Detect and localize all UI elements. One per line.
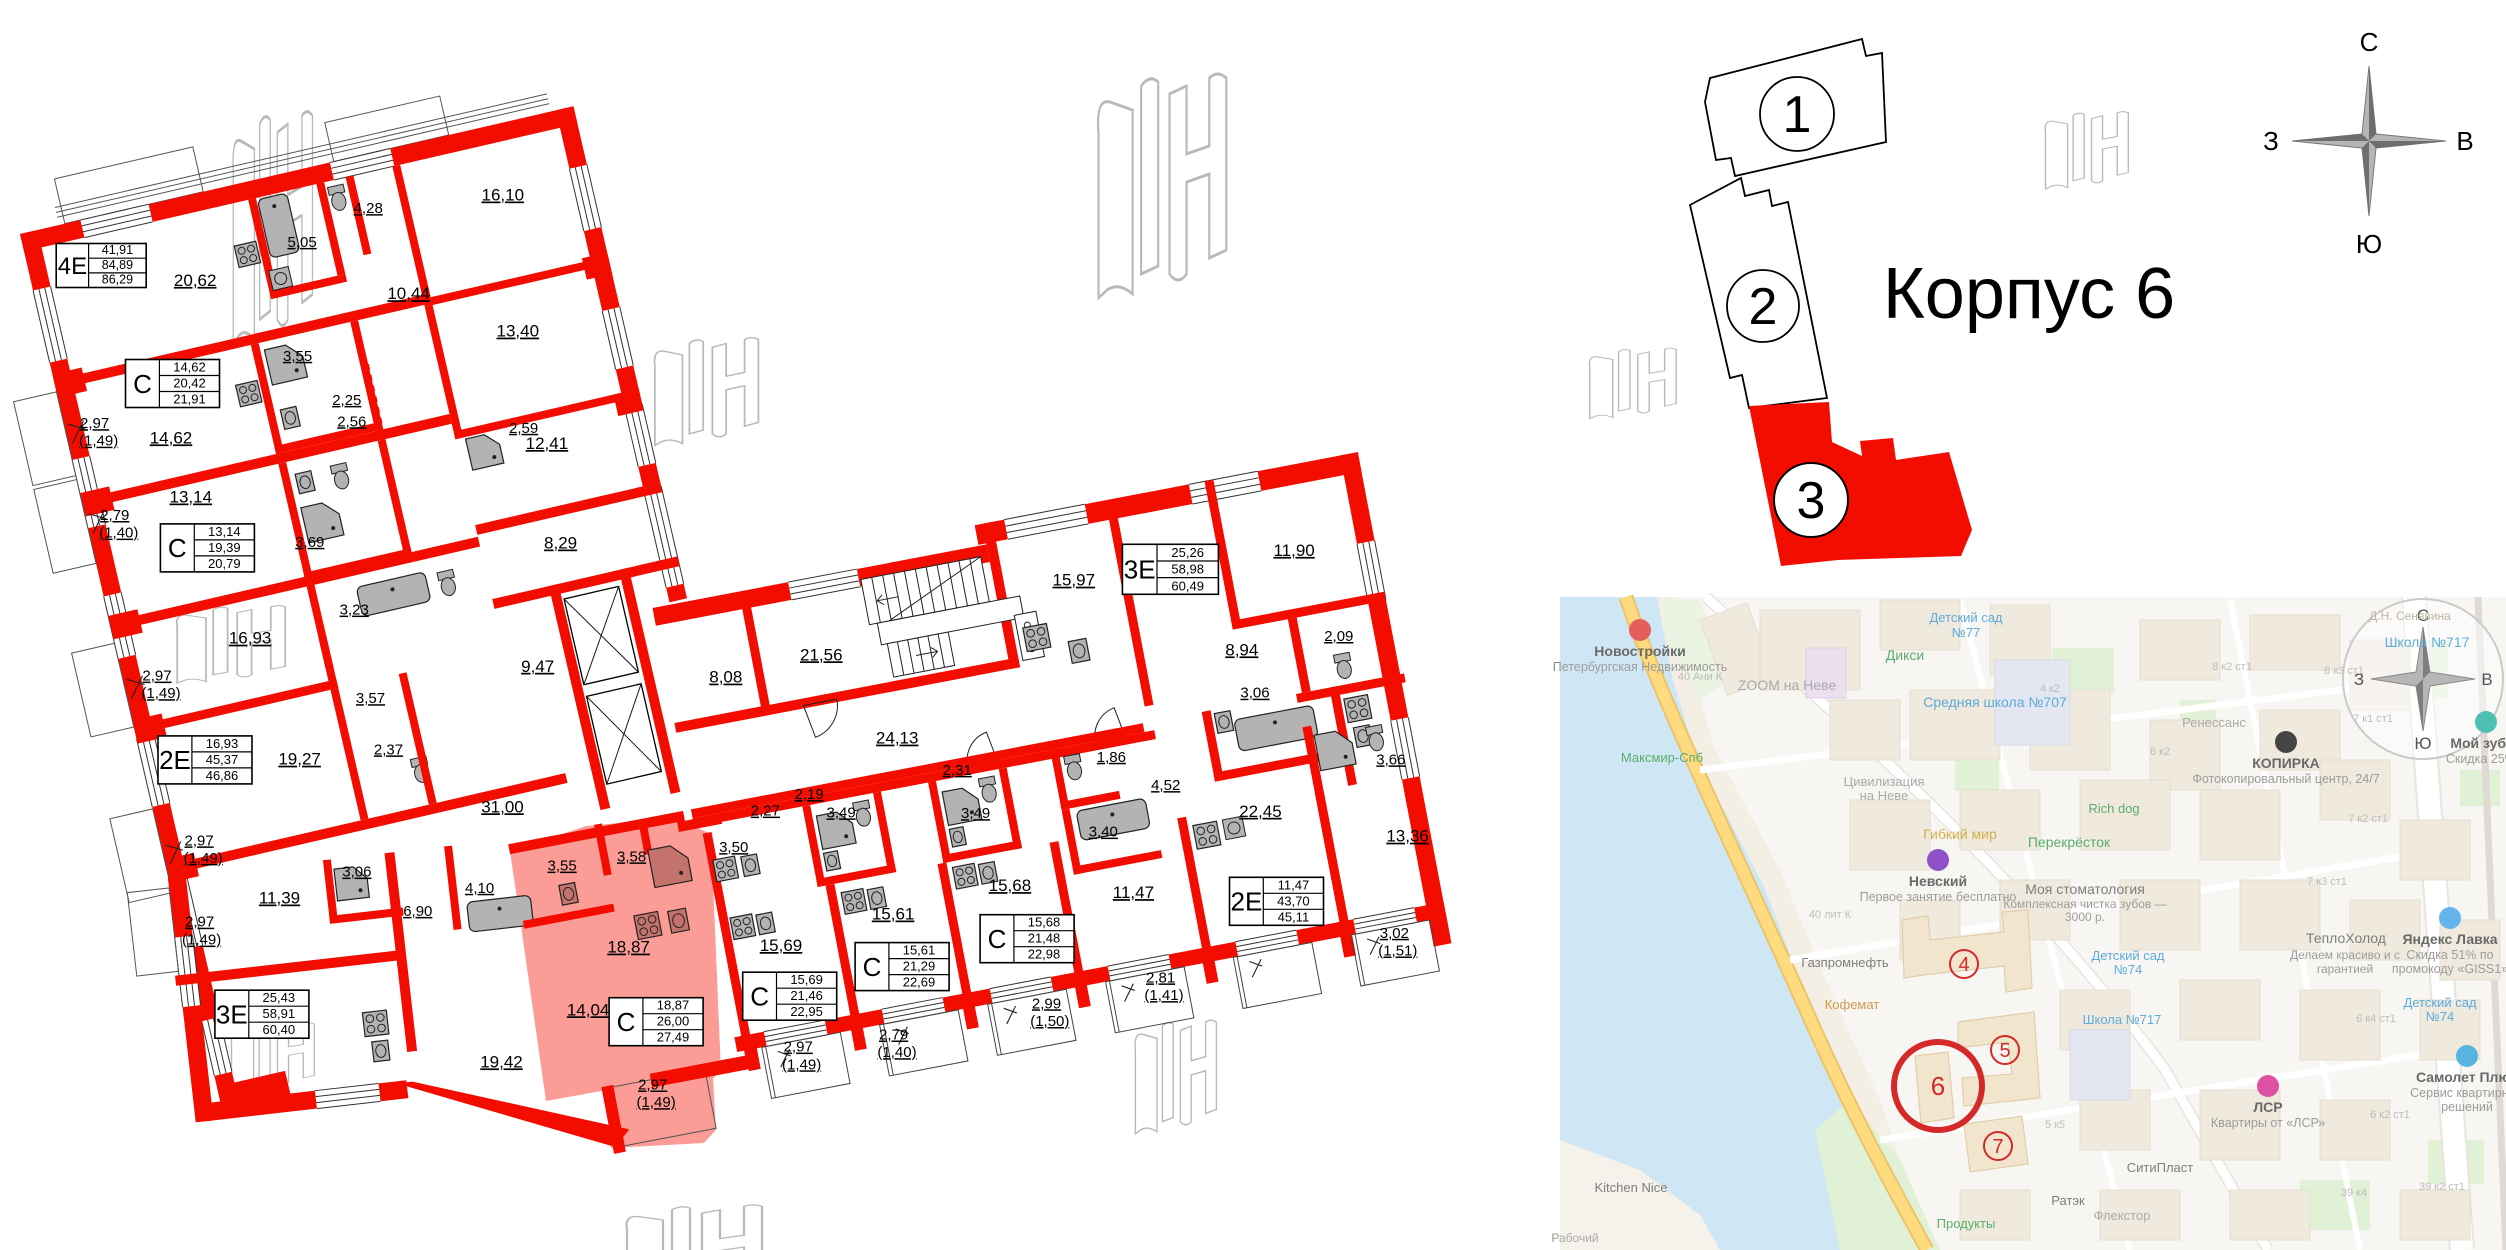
svg-text:25,26: 25,26 — [1171, 545, 1204, 560]
svg-text:3: 3 — [1797, 472, 1826, 530]
svg-text:2,27: 2,27 — [751, 803, 780, 820]
svg-text:3,06: 3,06 — [1240, 685, 1269, 702]
svg-text:11,90: 11,90 — [1273, 541, 1314, 560]
svg-text:19,42: 19,42 — [480, 1052, 523, 1071]
svg-text:3,58: 3,58 — [617, 848, 646, 865]
svg-text:5,05: 5,05 — [287, 234, 316, 251]
svg-text:3,69: 3,69 — [295, 534, 324, 551]
svg-text:8,94: 8,94 — [1225, 640, 1258, 659]
svg-text:13,40: 13,40 — [497, 322, 540, 341]
svg-text:3,55: 3,55 — [547, 858, 576, 875]
svg-text:15,69: 15,69 — [760, 936, 803, 955]
svg-text:14,62: 14,62 — [150, 428, 193, 447]
svg-text:16,93: 16,93 — [229, 629, 272, 648]
svg-text:58,91: 58,91 — [263, 1006, 296, 1021]
svg-text:14,62: 14,62 — [173, 360, 206, 375]
svg-text:21,48: 21,48 — [1028, 931, 1061, 946]
svg-text:3,55: 3,55 — [283, 348, 312, 365]
svg-text:20,62: 20,62 — [174, 271, 217, 290]
svg-text:2,31: 2,31 — [943, 762, 972, 779]
svg-text:16,10: 16,10 — [482, 186, 525, 205]
svg-text:10,44: 10,44 — [387, 284, 430, 303]
svg-text:2,97: 2,97 — [184, 832, 213, 849]
svg-text:З: З — [2263, 126, 2279, 156]
svg-text:(1,50): (1,50) — [1030, 1013, 1069, 1030]
svg-text:60,49: 60,49 — [1171, 578, 1204, 593]
svg-text:19,27: 19,27 — [278, 750, 321, 769]
svg-text:2E: 2E — [1230, 887, 1262, 917]
svg-text:26,00: 26,00 — [657, 1014, 690, 1029]
svg-text:2,79: 2,79 — [100, 507, 129, 524]
svg-text:(1,49): (1,49) — [182, 932, 221, 949]
svg-text:18,87: 18,87 — [657, 998, 690, 1013]
svg-text:16,93: 16,93 — [206, 736, 239, 751]
svg-text:3,49: 3,49 — [961, 805, 990, 822]
svg-text:12,41: 12,41 — [526, 434, 569, 453]
svg-text:3E: 3E — [216, 1000, 248, 1030]
svg-text:3,06: 3,06 — [342, 864, 371, 881]
svg-text:3,50: 3,50 — [719, 839, 748, 856]
svg-text:15,61: 15,61 — [903, 943, 936, 958]
svg-text:1,86: 1,86 — [1097, 749, 1126, 766]
svg-text:21,46: 21,46 — [790, 988, 823, 1003]
svg-text:22,98: 22,98 — [1028, 947, 1061, 962]
svg-text:C: C — [988, 924, 1007, 954]
svg-text:43,70: 43,70 — [1277, 893, 1310, 908]
svg-text:13,36: 13,36 — [1386, 827, 1429, 846]
svg-text:21,56: 21,56 — [800, 645, 843, 664]
svg-text:2,25: 2,25 — [332, 392, 361, 409]
svg-text:2,97: 2,97 — [638, 1077, 667, 1094]
svg-text:8,08: 8,08 — [709, 668, 742, 687]
svg-text:2,37: 2,37 — [374, 741, 403, 758]
svg-text:С: С — [2360, 27, 2379, 57]
svg-text:19,39: 19,39 — [208, 540, 241, 555]
svg-text:4,28: 4,28 — [354, 200, 383, 217]
svg-text:3,57: 3,57 — [356, 690, 385, 707]
svg-text:2,79: 2,79 — [879, 1027, 908, 1044]
svg-text:11,39: 11,39 — [259, 889, 300, 908]
svg-text:18,87: 18,87 — [607, 938, 650, 957]
svg-text:2,09: 2,09 — [1324, 628, 1353, 645]
svg-text:3E: 3E — [1124, 555, 1156, 585]
svg-text:C: C — [750, 982, 769, 1012]
svg-text:46,86: 46,86 — [206, 768, 239, 783]
svg-text:21,91: 21,91 — [173, 392, 206, 407]
svg-text:41,91: 41,91 — [102, 243, 133, 257]
svg-text:2,97: 2,97 — [185, 914, 214, 931]
svg-text:20,79: 20,79 — [208, 556, 241, 571]
svg-text:2,59: 2,59 — [509, 420, 538, 437]
svg-text:(1,49): (1,49) — [782, 1056, 821, 1073]
svg-text:15,97: 15,97 — [1053, 571, 1096, 590]
svg-text:11,47: 11,47 — [1278, 877, 1310, 892]
svg-text:1: 1 — [1783, 86, 1812, 144]
svg-text:22,69: 22,69 — [903, 975, 936, 990]
svg-text:2,97: 2,97 — [142, 668, 171, 685]
svg-text:Ю: Ю — [2356, 229, 2382, 259]
svg-text:4E: 4E — [58, 253, 87, 280]
svg-text:27,49: 27,49 — [657, 1030, 690, 1045]
svg-text:(1,41): (1,41) — [1144, 987, 1183, 1004]
svg-text:C: C — [617, 1007, 636, 1037]
svg-text:8,29: 8,29 — [544, 534, 577, 553]
svg-text:15,68: 15,68 — [989, 876, 1032, 895]
svg-text:15,61: 15,61 — [872, 905, 915, 924]
svg-text:13,14: 13,14 — [170, 488, 213, 507]
svg-text:15,68: 15,68 — [1028, 915, 1061, 930]
svg-text:13,14: 13,14 — [208, 524, 241, 539]
svg-text:3,23: 3,23 — [340, 602, 369, 619]
svg-text:58,98: 58,98 — [1171, 562, 1204, 577]
svg-text:20,42: 20,42 — [173, 376, 206, 391]
svg-text:9,47: 9,47 — [521, 657, 554, 676]
svg-text:24,13: 24,13 — [876, 729, 919, 748]
svg-text:84,89: 84,89 — [102, 258, 133, 272]
svg-text:(1,40): (1,40) — [99, 525, 138, 542]
svg-text:(1,49): (1,49) — [184, 850, 223, 867]
svg-text:C: C — [863, 952, 882, 982]
svg-text:60,40: 60,40 — [263, 1022, 296, 1037]
svg-text:(1,49): (1,49) — [141, 685, 180, 702]
svg-text:6,90: 6,90 — [403, 903, 432, 920]
svg-text:2,19: 2,19 — [794, 786, 823, 803]
svg-text:4,10: 4,10 — [465, 880, 494, 897]
svg-text:3,40: 3,40 — [1089, 824, 1118, 841]
svg-text:31,00: 31,00 — [481, 797, 524, 816]
svg-text:(1,49): (1,49) — [637, 1094, 676, 1111]
svg-text:2E: 2E — [159, 745, 191, 775]
svg-text:22,95: 22,95 — [790, 1004, 823, 1019]
svg-text:2,56: 2,56 — [337, 413, 366, 430]
svg-text:2: 2 — [1749, 278, 1778, 336]
svg-text:2,97: 2,97 — [784, 1039, 813, 1056]
svg-text:Корпус 6: Корпус 6 — [1883, 254, 2175, 334]
svg-text:22,45: 22,45 — [1239, 802, 1282, 821]
svg-text:2,99: 2,99 — [1032, 995, 1061, 1012]
svg-text:C: C — [168, 533, 187, 563]
svg-text:45,11: 45,11 — [1278, 909, 1310, 924]
svg-text:4,52: 4,52 — [1151, 777, 1180, 794]
svg-text:21,29: 21,29 — [903, 959, 936, 974]
svg-text:2,97: 2,97 — [80, 415, 109, 432]
svg-text:3,66: 3,66 — [1376, 751, 1405, 768]
svg-text:14,04: 14,04 — [567, 1000, 610, 1019]
svg-text:2,81: 2,81 — [1146, 969, 1175, 986]
svg-text:(1,51): (1,51) — [1378, 943, 1417, 960]
svg-text:15,69: 15,69 — [790, 972, 823, 987]
svg-text:В: В — [2456, 126, 2473, 156]
svg-text:C: C — [133, 369, 152, 399]
svg-text:86,29: 86,29 — [102, 273, 133, 287]
svg-text:(1,40): (1,40) — [877, 1044, 916, 1061]
svg-text:45,37: 45,37 — [206, 752, 239, 767]
svg-text:11,47: 11,47 — [1113, 883, 1154, 902]
svg-text:3,49: 3,49 — [826, 804, 855, 821]
svg-text:25,43: 25,43 — [263, 990, 296, 1005]
svg-text:(1,49): (1,49) — [79, 433, 118, 450]
svg-text:3,02: 3,02 — [1380, 925, 1409, 942]
